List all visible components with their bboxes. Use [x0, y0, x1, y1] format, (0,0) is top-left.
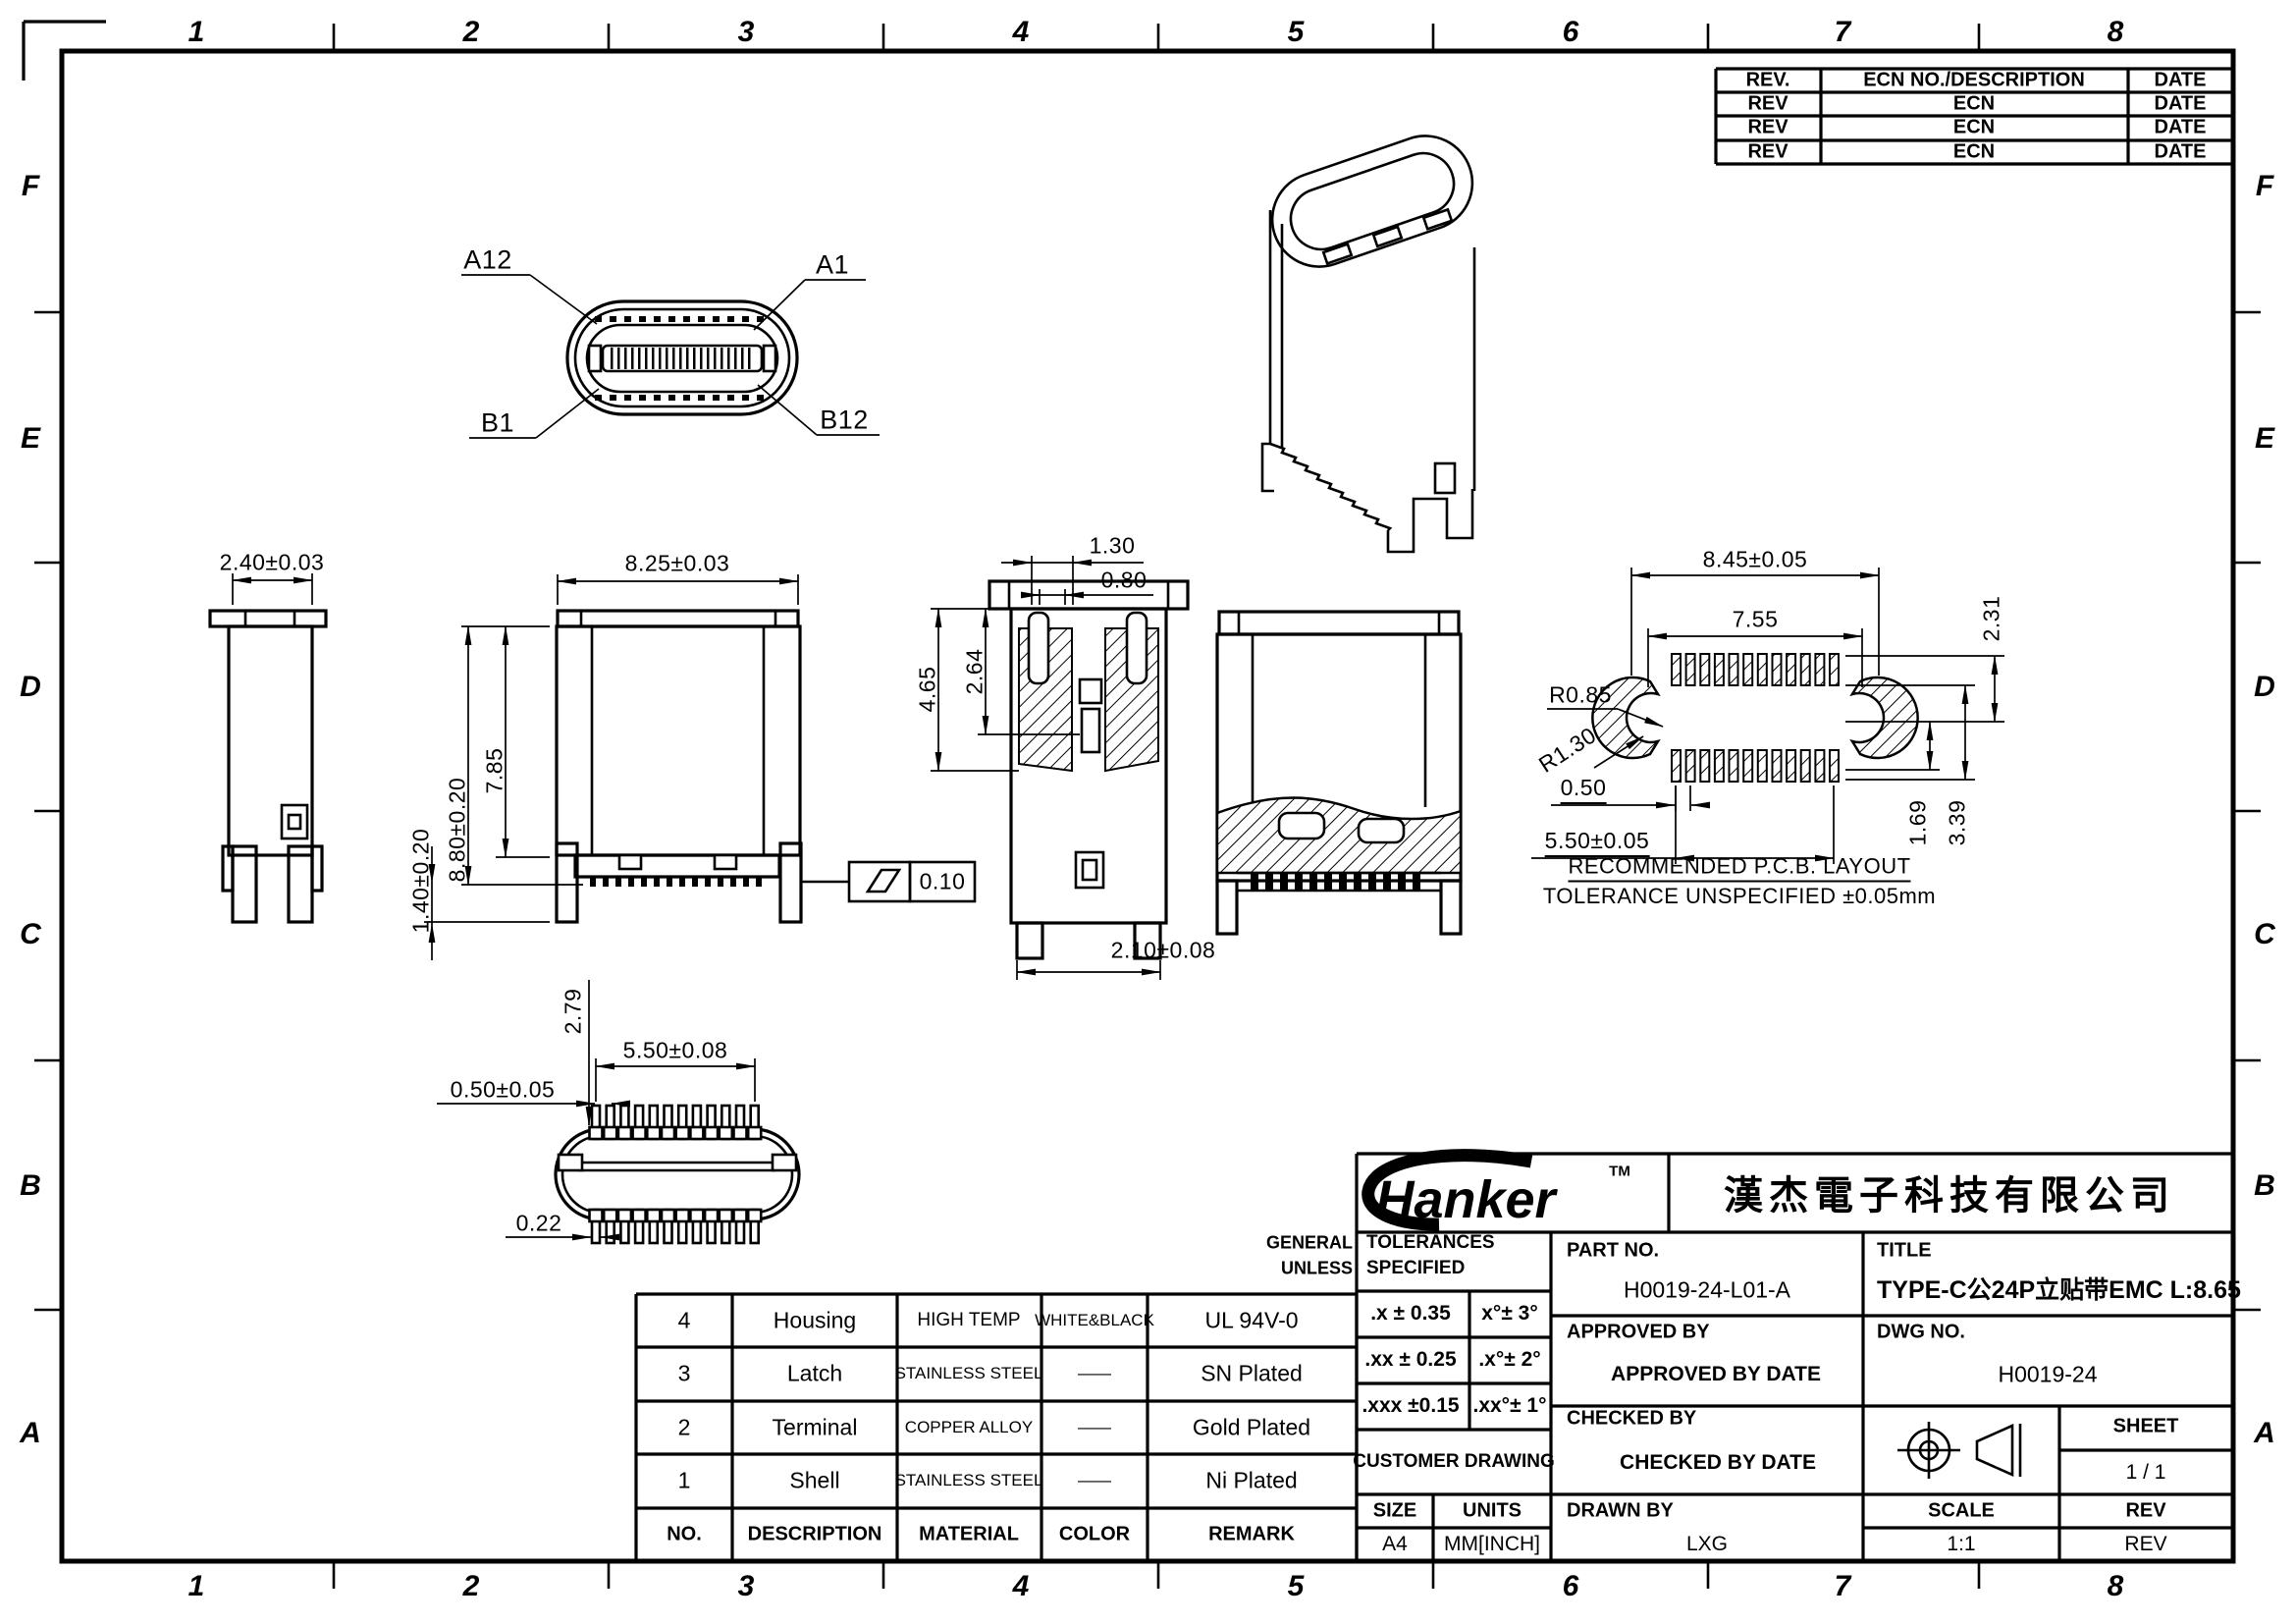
tolerances-specified-label-1: TOLERANCES: [1366, 1232, 1495, 1254]
zone-col-label: 7: [1835, 1570, 1851, 1603]
bom-color: ——: [1078, 1471, 1111, 1490]
zone-row-label: C: [20, 918, 41, 951]
pcb-pads-top: [1672, 654, 1839, 685]
tolerance-angular: x°± 3°: [1481, 1302, 1538, 1326]
rev-value: REV: [2124, 1533, 2166, 1556]
zone-row-label: A: [20, 1417, 41, 1450]
zone-row-label: E: [2255, 422, 2274, 456]
zone-col-label: 8: [2108, 1570, 2124, 1603]
bom-color: ——: [1078, 1418, 1111, 1437]
zone-row-label: A: [2254, 1417, 2275, 1450]
part-no-label: PART NO.: [1567, 1240, 1659, 1263]
bom-no: 2: [678, 1415, 691, 1441]
view-isometric-3d: [1259, 123, 1485, 552]
zone-row-label: C: [2254, 918, 2275, 951]
dim-bottom-height: 2.79: [561, 989, 587, 1035]
rev-cell: DATE: [2155, 117, 2207, 139]
units-label: UNITS: [1463, 1500, 1522, 1523]
rev-cell: DATE: [2155, 141, 2207, 164]
zone-col-label: 6: [1563, 16, 1579, 49]
tolerance-angular: .x°± 2°: [1478, 1348, 1540, 1372]
drawn-by-label: DRAWN BY: [1567, 1500, 1674, 1523]
bom-remark: UL 94V-0: [1204, 1308, 1298, 1334]
dim-pcb-v2: 1.69: [1905, 800, 1932, 846]
zone-row-label: E: [21, 422, 40, 456]
dwg-no-label: DWG NO.: [1877, 1322, 1965, 1344]
bom-header-description: DESCRIPTION: [748, 1524, 882, 1546]
dim-pin-width: 0.22: [516, 1211, 562, 1237]
bom-header-material: MATERIAL: [919, 1524, 1019, 1546]
projection-symbol-icon: [1897, 1422, 2020, 1479]
part-no-value: H0019-24-L01-A: [1624, 1277, 1790, 1304]
size-value: A4: [1382, 1533, 1408, 1556]
view-center-section: [800, 556, 1188, 980]
zone-col-label: 3: [738, 1570, 755, 1603]
bom-no: 1: [678, 1468, 691, 1494]
bom-description: Shell: [789, 1468, 839, 1494]
bom-material: STAINLESS STEEL: [895, 1471, 1043, 1490]
dim-pcb-v3: 3.39: [1945, 800, 1971, 846]
zone-col-label: 7: [1835, 16, 1851, 49]
pin-label-b1: B1: [481, 408, 514, 439]
bom-material: HIGH TEMP: [917, 1310, 1020, 1331]
drawn-by-value: LXG: [1686, 1533, 1728, 1556]
dwg-no-value: H0019-24: [1998, 1362, 2097, 1388]
bottom-pins-top: [590, 1106, 762, 1139]
dim-pcb-inner: 7.55: [1733, 607, 1779, 633]
zone-row-label: B: [2254, 1169, 2275, 1203]
rev-cell: DATE: [2155, 93, 2207, 116]
dim-pcb-span: 5.50±0.05: [1545, 828, 1650, 857]
zone-row-label: F: [2256, 170, 2273, 203]
approved-by-label: APPROVED BY: [1567, 1322, 1710, 1344]
pcb-layout-note: TOLERANCE UNSPECIFIED ±0.05mm: [1543, 884, 1936, 909]
tolerance-linear: .xxx ±0.15: [1362, 1394, 1459, 1418]
scale-value: 1:1: [1947, 1533, 1975, 1556]
bom-header-remark: REMARK: [1208, 1524, 1295, 1546]
dim-pcb-outer: 8.45±0.05: [1703, 547, 1808, 573]
view-plug-face: [461, 275, 880, 438]
zone-col-label: 3: [738, 16, 755, 49]
bottom-pins-bottom: [590, 1210, 762, 1243]
view-right-section: [1217, 612, 1461, 934]
dim-overall-height: 8.80±0.20: [445, 778, 471, 883]
dim-pcb-pitch: 0.50: [1561, 775, 1607, 804]
bom-remark: SN Plated: [1201, 1361, 1303, 1387]
dim-foot-height: 1.40±0.20: [408, 829, 435, 934]
company-name: 漢杰電子科技有限公司: [1724, 1164, 2175, 1220]
bom-header-color: COLOR: [1059, 1524, 1130, 1546]
approved-by-date-label: APPROVED BY DATE: [1611, 1363, 1821, 1386]
scale-label: SCALE: [1928, 1500, 1995, 1523]
tolerance-angular: .xx°± 1°: [1472, 1394, 1546, 1418]
pcb-pads-bottom: [1672, 750, 1839, 782]
pcb-shield-pad-right: [1852, 677, 1918, 758]
company-logo-text: Hanker: [1375, 1169, 1555, 1230]
zone-col-label: 1: [188, 1570, 205, 1603]
bom-material: STAINLESS STEEL: [895, 1364, 1043, 1383]
checked-by-label: CHECKED BY: [1567, 1408, 1696, 1431]
zone-col-label: 6: [1563, 1570, 1579, 1603]
zone-row-label: D: [20, 671, 41, 704]
dim-section-depth2: 2.64: [962, 649, 988, 695]
bom-remark: Gold Plated: [1193, 1415, 1310, 1441]
sheet-value: 1 / 1: [2126, 1461, 2166, 1485]
engineering-drawing-sheet: 1 2 3 4 5 6 7 8 1 2 3 4 5 6 7 8 F E D C …: [0, 0, 2296, 1624]
bom-description: Terminal: [773, 1415, 858, 1441]
bom-material: COPPER ALLOY: [905, 1418, 1033, 1437]
bom-header-no: NO.: [667, 1524, 702, 1546]
tolerance-linear: .xx ± 0.25: [1364, 1348, 1456, 1372]
rev-cell: REV: [1747, 117, 1788, 139]
dim-thickness: 2.10±0.08: [1111, 938, 1216, 964]
bom-color: WHITE&BLACK: [1035, 1311, 1154, 1330]
size-label: SIZE: [1373, 1500, 1416, 1523]
sheet-label: SHEET: [2113, 1416, 2179, 1438]
bom-description: Latch: [787, 1361, 842, 1387]
tolerances-specified-label-2: SPECIFIED: [1366, 1258, 1465, 1279]
dim-bottom-span: 5.50±0.08: [623, 1038, 728, 1064]
checked-by-date-label: CHECKED BY DATE: [1620, 1451, 1816, 1475]
zone-col-label: 4: [1013, 16, 1030, 49]
general-tolerances-label-2: UNLESS: [1217, 1259, 1353, 1279]
zone-col-label: 1: [188, 16, 205, 49]
view-side: [210, 573, 326, 922]
logo-tm-mark: TM: [1609, 1164, 1630, 1180]
dim-side-width: 2.40±0.03: [220, 550, 325, 576]
rev-header-date: DATE: [2155, 70, 2207, 92]
rev-cell: ECN: [1953, 141, 1995, 164]
zone-row-label: B: [20, 1169, 41, 1203]
view-bottom: [437, 980, 799, 1243]
zone-col-label: 2: [463, 16, 480, 49]
zone-col-label: 2: [463, 1570, 480, 1603]
rev-cell: REV: [1747, 93, 1788, 116]
title-label: TITLE: [1877, 1240, 1932, 1263]
rev-cell: REV: [1747, 141, 1788, 164]
dim-front-width: 8.25±0.03: [625, 551, 730, 577]
dim-slot-inner: 0.80: [1101, 568, 1148, 594]
customer-drawing-label: CUSTOMER DRAWING: [1353, 1451, 1554, 1473]
zone-col-label: 5: [1288, 1570, 1305, 1603]
rev-cell: ECN: [1953, 117, 1995, 139]
bom-description: Housing: [774, 1308, 856, 1334]
zone-col-label: 4: [1013, 1570, 1030, 1603]
dim-section-depth1: 4.65: [915, 667, 941, 713]
zone-row-label: D: [2254, 671, 2275, 704]
title-value: TYPE-C公24P立贴带EMC L:8.65: [1877, 1271, 2241, 1306]
general-tolerances-label-1: GENERAL: [1217, 1233, 1353, 1254]
pin-label-a12: A12: [463, 245, 512, 276]
bom-remark: Ni Plated: [1205, 1468, 1297, 1494]
dim-pcb-r-inner: R0.85: [1549, 682, 1612, 709]
zone-col-label: 8: [2108, 16, 2124, 49]
bom-no: 4: [678, 1308, 691, 1334]
dim-bottom-pitch: 0.50±0.05: [451, 1077, 556, 1104]
pin-label-b12: B12: [820, 406, 869, 436]
zone-row-label: F: [22, 170, 39, 203]
pin-label-a1: A1: [816, 250, 849, 281]
dim-flatness-value: 0.10: [920, 869, 966, 895]
rev-header-rev: REV.: [1746, 70, 1790, 92]
rev-cell: ECN: [1953, 93, 1995, 116]
dim-body-height: 7.85: [482, 748, 508, 794]
zone-col-label: 5: [1288, 16, 1305, 49]
bom-no: 3: [678, 1361, 691, 1387]
dim-slot-width: 1.30: [1090, 533, 1136, 560]
pcb-layout-title: RECOMMENDED P.C.B. LAYOUT: [1568, 854, 1910, 883]
rev-header-ecn: ECN NO./DESCRIPTION: [1863, 70, 2085, 92]
dim-pcb-v1: 2.31: [1979, 596, 2005, 642]
rev-label: REV: [2125, 1500, 2165, 1523]
bom-color: ——: [1078, 1364, 1111, 1383]
tolerance-linear: .x ± 0.35: [1370, 1302, 1451, 1326]
units-value: MM[INCH]: [1444, 1533, 1540, 1556]
